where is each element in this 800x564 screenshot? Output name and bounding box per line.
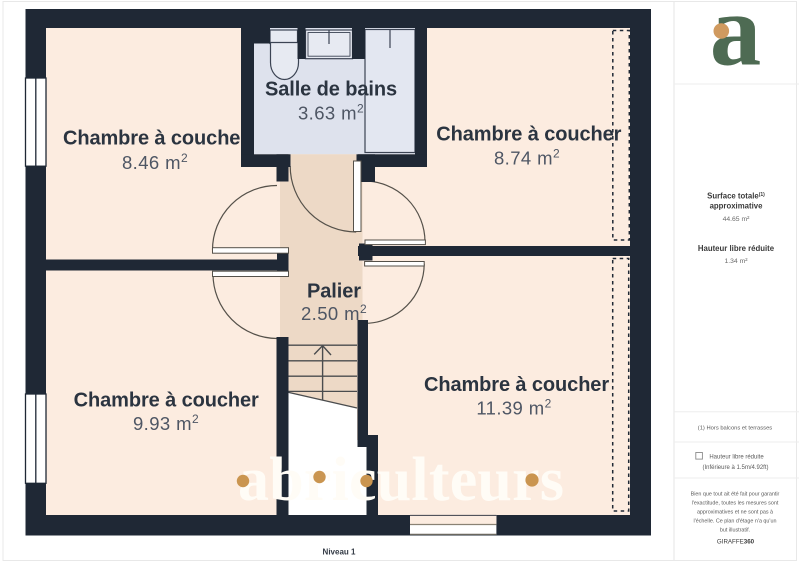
svg-text:Chambre à coucher: Chambre à coucher [63,128,248,150]
svg-text:approximatives et ne sont pas: approximatives et ne sont pas à [697,510,773,516]
svg-text:abriculteurs: abriculteurs [238,446,564,514]
svg-text:(Inférieure à 1.5m/4.92ft): (Inférieure à 1.5m/4.92ft) [702,465,768,471]
svg-text:Bien que tout ait été fait pou: Bien que tout ait été fait pour garantir [691,492,780,498]
svg-text:Chambre à coucher: Chambre à coucher [424,374,609,396]
svg-text:GIRAFFE360: GIRAFFE360 [717,539,755,546]
svg-text:3.63 m2: 3.63 m2 [298,102,364,124]
svg-text:l'échelle. Ce plan d'étage n'a: l'échelle. Ce plan d'étage n'a qu'un [694,519,777,525]
svg-text:Salle de bains: Salle de bains [265,79,397,101]
svg-text:Palier: Palier [307,280,361,302]
svg-text:2.50 m2: 2.50 m2 [301,302,367,324]
svg-text:1.34 m²: 1.34 m² [724,258,748,265]
svg-text:but illustratif.: but illustratif. [720,528,750,534]
svg-text:l'exactitude, toutes les mesur: l'exactitude, toutes les mesures sont [692,501,779,507]
svg-text:Hauteur libre réduite: Hauteur libre réduite [709,455,764,461]
svg-text:a: a [710,0,762,88]
svg-text:(1) Hors balcons et terrasses: (1) Hors balcons et terrasses [698,426,773,432]
svg-text:11.39 m2: 11.39 m2 [476,397,551,419]
svg-text:44.65 m²: 44.65 m² [723,216,751,223]
svg-text:approximative: approximative [710,202,764,211]
svg-text:8.46 m2: 8.46 m2 [122,151,188,173]
svg-text:Surface totale(1): Surface totale(1) [707,192,765,201]
svg-text:8.74 m2: 8.74 m2 [494,147,560,169]
svg-text:Hauteur libre réduite: Hauteur libre réduite [698,244,775,253]
svg-text:Chambre à coucher: Chambre à coucher [436,124,621,146]
svg-text:Chambre à coucher: Chambre à coucher [74,390,259,412]
svg-text:Niveau 1: Niveau 1 [323,548,356,557]
svg-text:9.93 m2: 9.93 m2 [133,412,199,434]
